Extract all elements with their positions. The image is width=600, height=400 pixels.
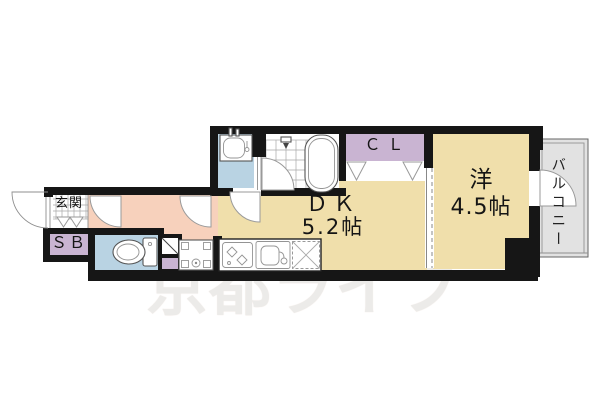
balcony-label: バルコニー: [549, 146, 564, 261]
entry-door-arc-icon: [12, 192, 48, 228]
refrigerator-space-icon: [293, 242, 320, 269]
dk-room-size: 5.2帖: [258, 216, 408, 238]
small-storage-box: [159, 256, 180, 271]
shoe-box-label: ＳＢ: [50, 235, 88, 252]
western-room-size: 4.5帖: [429, 196, 533, 219]
dk-room-label: ＤＫ: [258, 193, 408, 216]
toilet-icon: [113, 238, 157, 266]
washing-machine-pan-icon: [179, 240, 213, 270]
bathtub-icon: [305, 135, 338, 192]
pipe-space-icon: [158, 234, 182, 258]
closet-label: ＣＬ: [346, 137, 424, 154]
western-room-label: 洋: [433, 168, 529, 192]
floor-plan-canvas: 玄関 ＳＢ ＣＬ ＤＫ 5.2帖 洋 4.5帖 バルコニー 京都ライフ: [0, 0, 600, 400]
entrance-label: 玄関: [49, 197, 89, 211]
